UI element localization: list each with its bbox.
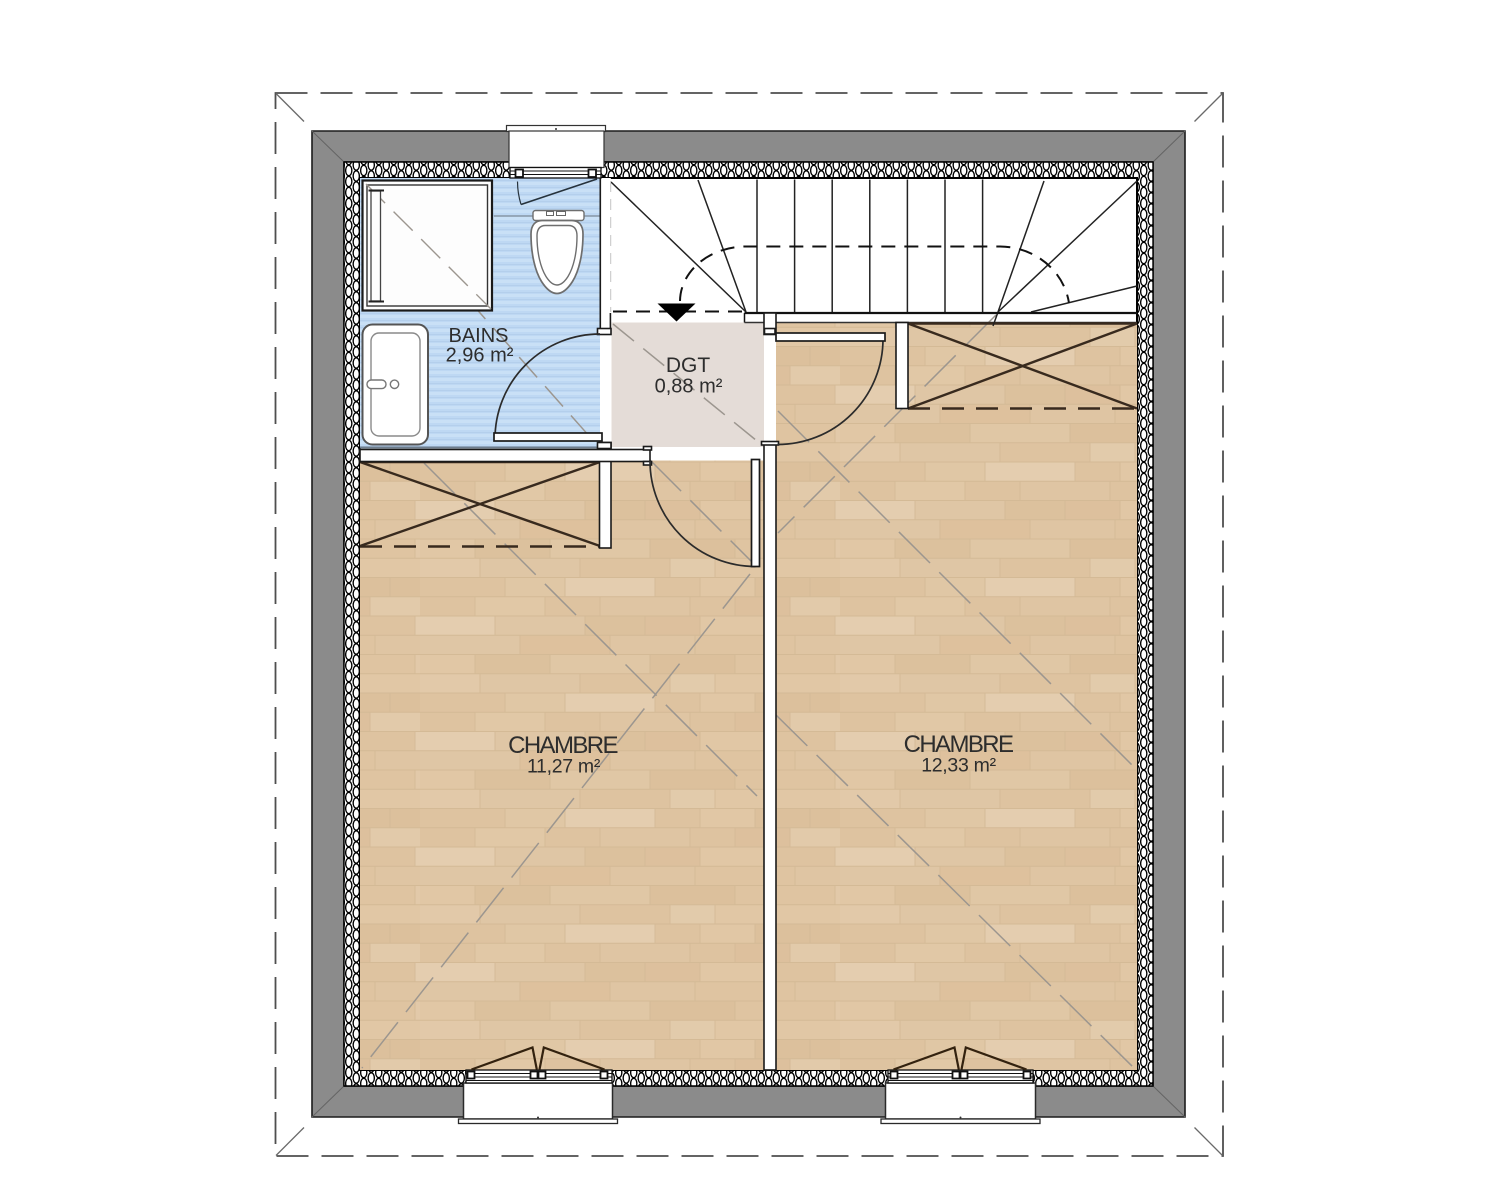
svg-text:2,96 m²: 2,96 m² — [446, 345, 514, 367]
svg-text:11,27 m²: 11,27 m² — [527, 756, 601, 778]
svg-text:DGT: DGT — [666, 354, 711, 377]
svg-text:0,88 m²: 0,88 m² — [655, 376, 723, 398]
svg-text:12,33 m²: 12,33 m² — [921, 755, 996, 777]
